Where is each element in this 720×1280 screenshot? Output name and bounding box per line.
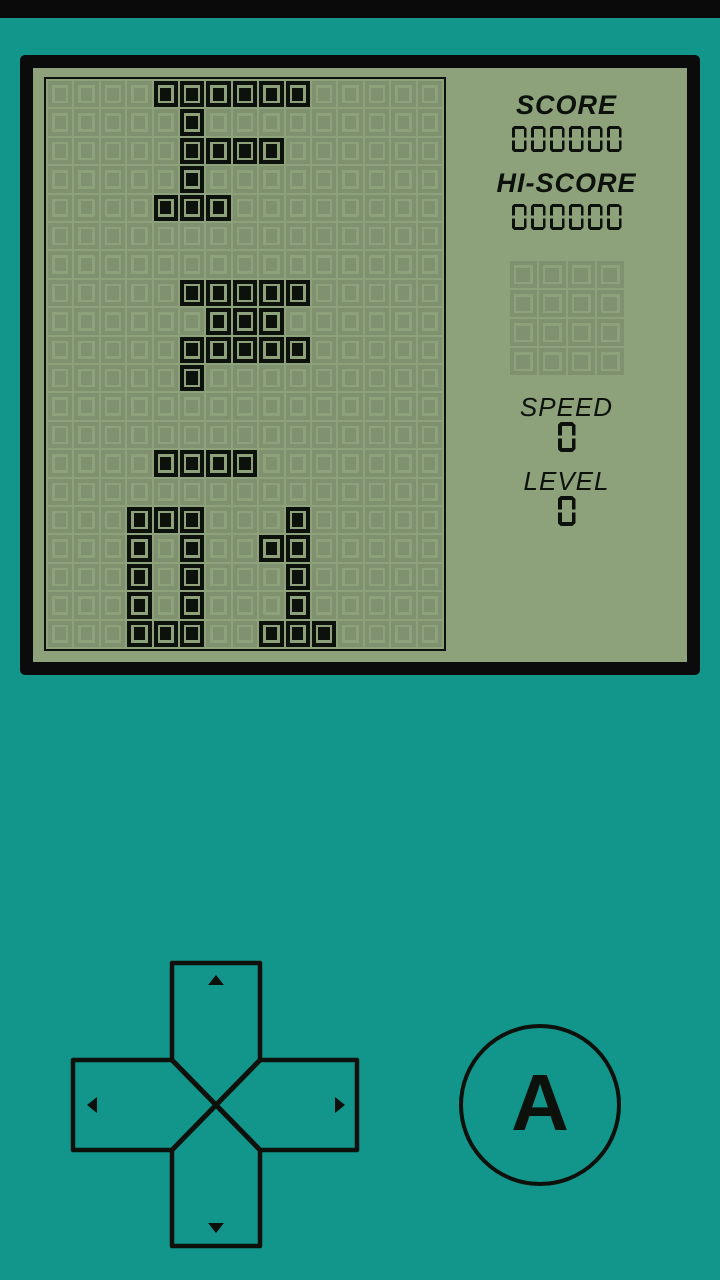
- block-cell-off: [179, 392, 205, 420]
- block-cell-off: [364, 137, 390, 165]
- seven-seg-digit-0: [550, 204, 565, 230]
- block-cell-on: [205, 449, 231, 477]
- block-cell-off: [126, 421, 152, 449]
- dpad-up-button[interactable]: [172, 963, 260, 1060]
- block-cell-off: [47, 250, 73, 278]
- block-cell-off: [232, 222, 258, 250]
- top-bar: [0, 0, 720, 18]
- block-cell-off: [100, 506, 126, 534]
- block-cell-off: [100, 336, 126, 364]
- block-cell-off: [337, 165, 363, 193]
- block-cell-off: [337, 108, 363, 136]
- block-cell-off: [205, 108, 231, 136]
- block-cell-off: [73, 165, 99, 193]
- block-cell-off: [417, 364, 443, 392]
- block-cell-off: [47, 364, 73, 392]
- block-cell-off: [100, 563, 126, 591]
- seven-seg-digit-0: [512, 126, 527, 152]
- block-cell-off: [100, 194, 126, 222]
- block-cell-off: [390, 563, 416, 591]
- block-cell-on: [179, 137, 205, 165]
- block-cell-on: [285, 563, 311, 591]
- block-cell-off: [205, 620, 231, 648]
- block-cell-off: [364, 307, 390, 335]
- block-cell-off: [73, 591, 99, 619]
- block-cell-on: [258, 336, 284, 364]
- block-cell-off: [47, 478, 73, 506]
- block-cell-off: [47, 80, 73, 108]
- block-cell-off: [417, 194, 443, 222]
- block-cell-on: [258, 534, 284, 562]
- block-cell-off: [47, 534, 73, 562]
- block-cell-off: [153, 534, 179, 562]
- block-cell-off: [232, 392, 258, 420]
- block-cell-off: [258, 222, 284, 250]
- block-cell-off: [126, 80, 152, 108]
- block-cell-off: [364, 222, 390, 250]
- block-cell-off: [364, 534, 390, 562]
- side-panel: SCORE HI-SCORE SPEED LEVEL: [446, 68, 687, 662]
- block-cell-off: [258, 591, 284, 619]
- block-cell-off: [179, 222, 205, 250]
- block-cell-off: [417, 108, 443, 136]
- block-cell-off: [417, 307, 443, 335]
- block-cell-off: [364, 364, 390, 392]
- seven-seg-digit-0: [607, 126, 622, 152]
- block-cell-off: [390, 449, 416, 477]
- block-cell-on: [285, 279, 311, 307]
- block-cell-off: [311, 250, 337, 278]
- block-cell-on: [179, 336, 205, 364]
- block-cell-off: [100, 620, 126, 648]
- block-cell-off: [311, 194, 337, 222]
- block-cell-off: [337, 222, 363, 250]
- block-cell-off: [390, 421, 416, 449]
- block-cell-off: [100, 250, 126, 278]
- next-piece-preview: [509, 260, 625, 376]
- block-cell-off: [153, 478, 179, 506]
- speed-value: [446, 422, 687, 452]
- block-cell-off: [285, 108, 311, 136]
- block-cell-off: [205, 392, 231, 420]
- block-cell-off: [47, 137, 73, 165]
- block-cell-off: [390, 307, 416, 335]
- console-bezel: SCORE HI-SCORE SPEED LEVEL: [20, 55, 700, 675]
- block-cell-off: [100, 478, 126, 506]
- block-cell-on: [232, 137, 258, 165]
- block-cell-off: [126, 478, 152, 506]
- block-cell-off: [126, 222, 152, 250]
- block-cell-off: [364, 421, 390, 449]
- block-cell-on: [285, 336, 311, 364]
- seven-seg-digit-0: [531, 126, 546, 152]
- block-cell-off: [153, 307, 179, 335]
- block-cell-off: [153, 222, 179, 250]
- block-cell-off: [258, 506, 284, 534]
- block-cell-on: [153, 620, 179, 648]
- block-cell-off: [100, 421, 126, 449]
- block-cell-off: [100, 364, 126, 392]
- block-cell-on: [179, 279, 205, 307]
- block-cell-off: [153, 421, 179, 449]
- block-cell-on: [179, 563, 205, 591]
- block-cell-off: [258, 478, 284, 506]
- block-cell-off: [258, 392, 284, 420]
- block-cell-off: [205, 165, 231, 193]
- block-cell-off: [311, 478, 337, 506]
- block-cell-off: [337, 194, 363, 222]
- block-cell-off: [73, 222, 99, 250]
- seven-seg-digit-0: [607, 204, 622, 230]
- block-cell-off: [337, 279, 363, 307]
- block-cell-off: [205, 250, 231, 278]
- block-cell-off: [364, 194, 390, 222]
- block-cell-off: [390, 534, 416, 562]
- block-cell-off: [73, 250, 99, 278]
- block-cell-off: [232, 506, 258, 534]
- dpad-right-button[interactable]: [260, 1060, 357, 1150]
- speed-label: SPEED: [446, 394, 687, 420]
- block-cell-on: [205, 137, 231, 165]
- block-cell-off: [417, 534, 443, 562]
- block-cell-off: [311, 80, 337, 108]
- block-cell-off: [126, 279, 152, 307]
- block-cell-off: [153, 137, 179, 165]
- block-cell-off: [364, 336, 390, 364]
- block-cell-off: [258, 449, 284, 477]
- block-cell-off: [126, 137, 152, 165]
- block-cell-off: [73, 421, 99, 449]
- block-cell-off: [153, 250, 179, 278]
- block-cell-off: [100, 137, 126, 165]
- block-cell-off: [311, 421, 337, 449]
- block-cell-off: [47, 108, 73, 136]
- block-cell-off: [285, 194, 311, 222]
- block-cell-off: [364, 506, 390, 534]
- block-cell-off: [337, 506, 363, 534]
- dpad-down-button[interactable]: [172, 1150, 260, 1246]
- block-cell-on: [285, 80, 311, 108]
- block-cell-off: [311, 137, 337, 165]
- block-cell-off: [390, 364, 416, 392]
- block-cell-off: [509, 318, 538, 347]
- block-cell-off: [417, 279, 443, 307]
- block-cell-off: [73, 80, 99, 108]
- block-cell-off: [153, 563, 179, 591]
- block-cell-on: [258, 137, 284, 165]
- block-cell-off: [232, 165, 258, 193]
- block-cell-off: [311, 506, 337, 534]
- block-cell-off: [596, 260, 625, 289]
- block-cell-on: [126, 506, 152, 534]
- block-cell-on: [311, 620, 337, 648]
- block-cell-off: [73, 563, 99, 591]
- seven-seg-digit-0: [569, 204, 584, 230]
- block-cell-off: [205, 421, 231, 449]
- block-cell-off: [337, 307, 363, 335]
- block-cell-off: [311, 563, 337, 591]
- score-value: [446, 126, 687, 152]
- block-cell-off: [126, 108, 152, 136]
- a-button[interactable]: A: [459, 1024, 621, 1186]
- block-cell-off: [417, 478, 443, 506]
- block-cell-off: [126, 449, 152, 477]
- block-cell-off: [73, 534, 99, 562]
- block-cell-off: [47, 336, 73, 364]
- block-cell-on: [179, 449, 205, 477]
- block-cell-on: [179, 194, 205, 222]
- block-cell-off: [47, 392, 73, 420]
- block-cell-off: [364, 478, 390, 506]
- block-cell-off: [567, 260, 596, 289]
- block-cell-off: [390, 108, 416, 136]
- block-cell-off: [153, 279, 179, 307]
- block-cell-on: [232, 336, 258, 364]
- block-cell-off: [47, 165, 73, 193]
- block-cell-on: [232, 449, 258, 477]
- playfield: [44, 77, 446, 651]
- block-cell-off: [153, 591, 179, 619]
- block-cell-off: [364, 620, 390, 648]
- block-cell-off: [390, 620, 416, 648]
- block-cell-off: [390, 392, 416, 420]
- block-cell-on: [126, 534, 152, 562]
- block-cell-on: [232, 80, 258, 108]
- block-cell-off: [47, 620, 73, 648]
- block-cell-off: [311, 222, 337, 250]
- block-cell-off: [285, 307, 311, 335]
- block-cell-off: [232, 478, 258, 506]
- block-cell-off: [311, 108, 337, 136]
- block-cell-off: [47, 563, 73, 591]
- block-cell-off: [47, 449, 73, 477]
- dpad-left-button[interactable]: [73, 1060, 172, 1150]
- seven-seg-digit-0: [588, 126, 603, 152]
- block-cell-off: [364, 279, 390, 307]
- block-cell-off: [73, 108, 99, 136]
- block-cell-off: [390, 137, 416, 165]
- block-cell-off: [311, 279, 337, 307]
- block-cell-off: [285, 364, 311, 392]
- block-cell-off: [337, 421, 363, 449]
- block-cell-off: [509, 289, 538, 318]
- block-cell-off: [100, 392, 126, 420]
- block-cell-on: [258, 279, 284, 307]
- seven-seg-digit-0: [531, 204, 546, 230]
- block-cell-off: [538, 289, 567, 318]
- block-cell-off: [205, 563, 231, 591]
- block-cell-off: [337, 80, 363, 108]
- block-cell-off: [126, 250, 152, 278]
- block-cell-off: [337, 250, 363, 278]
- block-cell-off: [100, 108, 126, 136]
- block-cell-off: [232, 364, 258, 392]
- block-cell-off: [337, 620, 363, 648]
- block-cell-off: [73, 307, 99, 335]
- block-cell-on: [179, 364, 205, 392]
- block-cell-on: [126, 563, 152, 591]
- block-cell-off: [258, 364, 284, 392]
- block-cell-off: [337, 478, 363, 506]
- block-cell-off: [179, 250, 205, 278]
- block-cell-off: [47, 194, 73, 222]
- block-cell-off: [417, 421, 443, 449]
- block-cell-off: [153, 108, 179, 136]
- block-cell-off: [417, 506, 443, 534]
- block-cell-off: [311, 364, 337, 392]
- block-cell-off: [179, 421, 205, 449]
- block-cell-off: [364, 250, 390, 278]
- block-cell-off: [417, 392, 443, 420]
- block-cell-on: [153, 506, 179, 534]
- block-cell-on: [179, 591, 205, 619]
- block-cell-off: [126, 392, 152, 420]
- block-cell-off: [232, 108, 258, 136]
- block-cell-off: [100, 449, 126, 477]
- block-cell-off: [258, 563, 284, 591]
- block-cell-off: [390, 222, 416, 250]
- block-cell-off: [364, 392, 390, 420]
- block-cell-off: [100, 534, 126, 562]
- hiscore-value: [446, 204, 687, 230]
- block-cell-off: [390, 165, 416, 193]
- block-cell-off: [100, 222, 126, 250]
- block-cell-off: [47, 307, 73, 335]
- seven-seg-digit-0: [588, 204, 603, 230]
- block-cell-off: [205, 506, 231, 534]
- block-cell-off: [126, 307, 152, 335]
- block-cell-off: [417, 563, 443, 591]
- block-cell-off: [538, 318, 567, 347]
- block-cell-off: [567, 347, 596, 376]
- block-cell-off: [205, 534, 231, 562]
- brick-game-screen: { "colors": { "teal": "#12968C", "ink": …: [0, 0, 720, 1280]
- block-cell-off: [205, 478, 231, 506]
- block-cell-off: [337, 449, 363, 477]
- block-cell-off: [73, 620, 99, 648]
- block-cell-off: [153, 165, 179, 193]
- block-cell-off: [390, 194, 416, 222]
- block-cell-off: [417, 449, 443, 477]
- seven-seg-digit-0: [558, 422, 576, 452]
- block-cell-on: [258, 80, 284, 108]
- block-cell-off: [258, 250, 284, 278]
- block-cell-off: [337, 591, 363, 619]
- block-cell-off: [337, 336, 363, 364]
- block-cell-off: [390, 80, 416, 108]
- block-cell-off: [337, 137, 363, 165]
- block-cell-off: [538, 347, 567, 376]
- block-cell-off: [126, 364, 152, 392]
- block-cell-off: [417, 336, 443, 364]
- block-cell-off: [232, 250, 258, 278]
- block-cell-off: [73, 506, 99, 534]
- block-cell-off: [100, 165, 126, 193]
- block-cell-off: [390, 506, 416, 534]
- block-cell-off: [258, 421, 284, 449]
- block-cell-off: [100, 591, 126, 619]
- seven-seg-digit-0: [558, 496, 576, 526]
- block-cell-off: [509, 347, 538, 376]
- block-cell-on: [179, 165, 205, 193]
- block-cell-off: [47, 279, 73, 307]
- block-cell-off: [73, 336, 99, 364]
- block-cell-off: [258, 165, 284, 193]
- block-cell-off: [596, 289, 625, 318]
- block-cell-off: [311, 392, 337, 420]
- dpad[interactable]: [60, 950, 370, 1260]
- block-cell-off: [417, 137, 443, 165]
- block-cell-on: [179, 506, 205, 534]
- block-cell-on: [205, 80, 231, 108]
- block-cell-off: [417, 165, 443, 193]
- block-cell-off: [73, 137, 99, 165]
- block-cell-off: [567, 318, 596, 347]
- block-cell-off: [364, 591, 390, 619]
- score-label: SCORE: [446, 92, 687, 119]
- block-cell-off: [232, 591, 258, 619]
- block-cell-off: [258, 108, 284, 136]
- block-cell-off: [364, 165, 390, 193]
- block-cell-off: [100, 80, 126, 108]
- block-cell-on: [179, 80, 205, 108]
- seven-seg-digit-0: [569, 126, 584, 152]
- block-cell-off: [337, 534, 363, 562]
- block-cell-off: [285, 165, 311, 193]
- block-cell-off: [205, 222, 231, 250]
- block-cell-off: [126, 165, 152, 193]
- level-value: [446, 496, 687, 526]
- block-cell-off: [417, 620, 443, 648]
- block-cell-off: [232, 194, 258, 222]
- block-cell-off: [285, 222, 311, 250]
- block-cell-off: [337, 392, 363, 420]
- block-cell-off: [73, 478, 99, 506]
- block-cell-off: [596, 318, 625, 347]
- block-cell-off: [390, 591, 416, 619]
- block-cell-off: [285, 137, 311, 165]
- block-cell-off: [337, 563, 363, 591]
- block-cell-on: [205, 194, 231, 222]
- a-button-label: A: [511, 1063, 569, 1143]
- block-cell-on: [179, 534, 205, 562]
- block-cell-off: [205, 591, 231, 619]
- seven-seg-digit-0: [550, 126, 565, 152]
- block-cell-off: [73, 449, 99, 477]
- block-cell-off: [232, 563, 258, 591]
- hiscore-label: HI-SCORE: [446, 170, 687, 197]
- block-cell-off: [567, 289, 596, 318]
- block-cell-off: [73, 364, 99, 392]
- block-cell-on: [258, 307, 284, 335]
- block-cell-off: [364, 108, 390, 136]
- block-cell-off: [126, 336, 152, 364]
- block-cell-off: [285, 449, 311, 477]
- block-cell-on: [205, 336, 231, 364]
- block-cell-off: [364, 563, 390, 591]
- seven-seg-digit-0: [512, 204, 527, 230]
- level-label: LEVEL: [446, 468, 687, 494]
- block-cell-off: [258, 194, 284, 222]
- block-cell-off: [311, 449, 337, 477]
- block-cell-off: [73, 392, 99, 420]
- block-cell-off: [73, 194, 99, 222]
- block-cell-off: [179, 478, 205, 506]
- block-cell-off: [390, 279, 416, 307]
- block-cell-off: [337, 364, 363, 392]
- block-cell-off: [285, 392, 311, 420]
- block-cell-off: [311, 591, 337, 619]
